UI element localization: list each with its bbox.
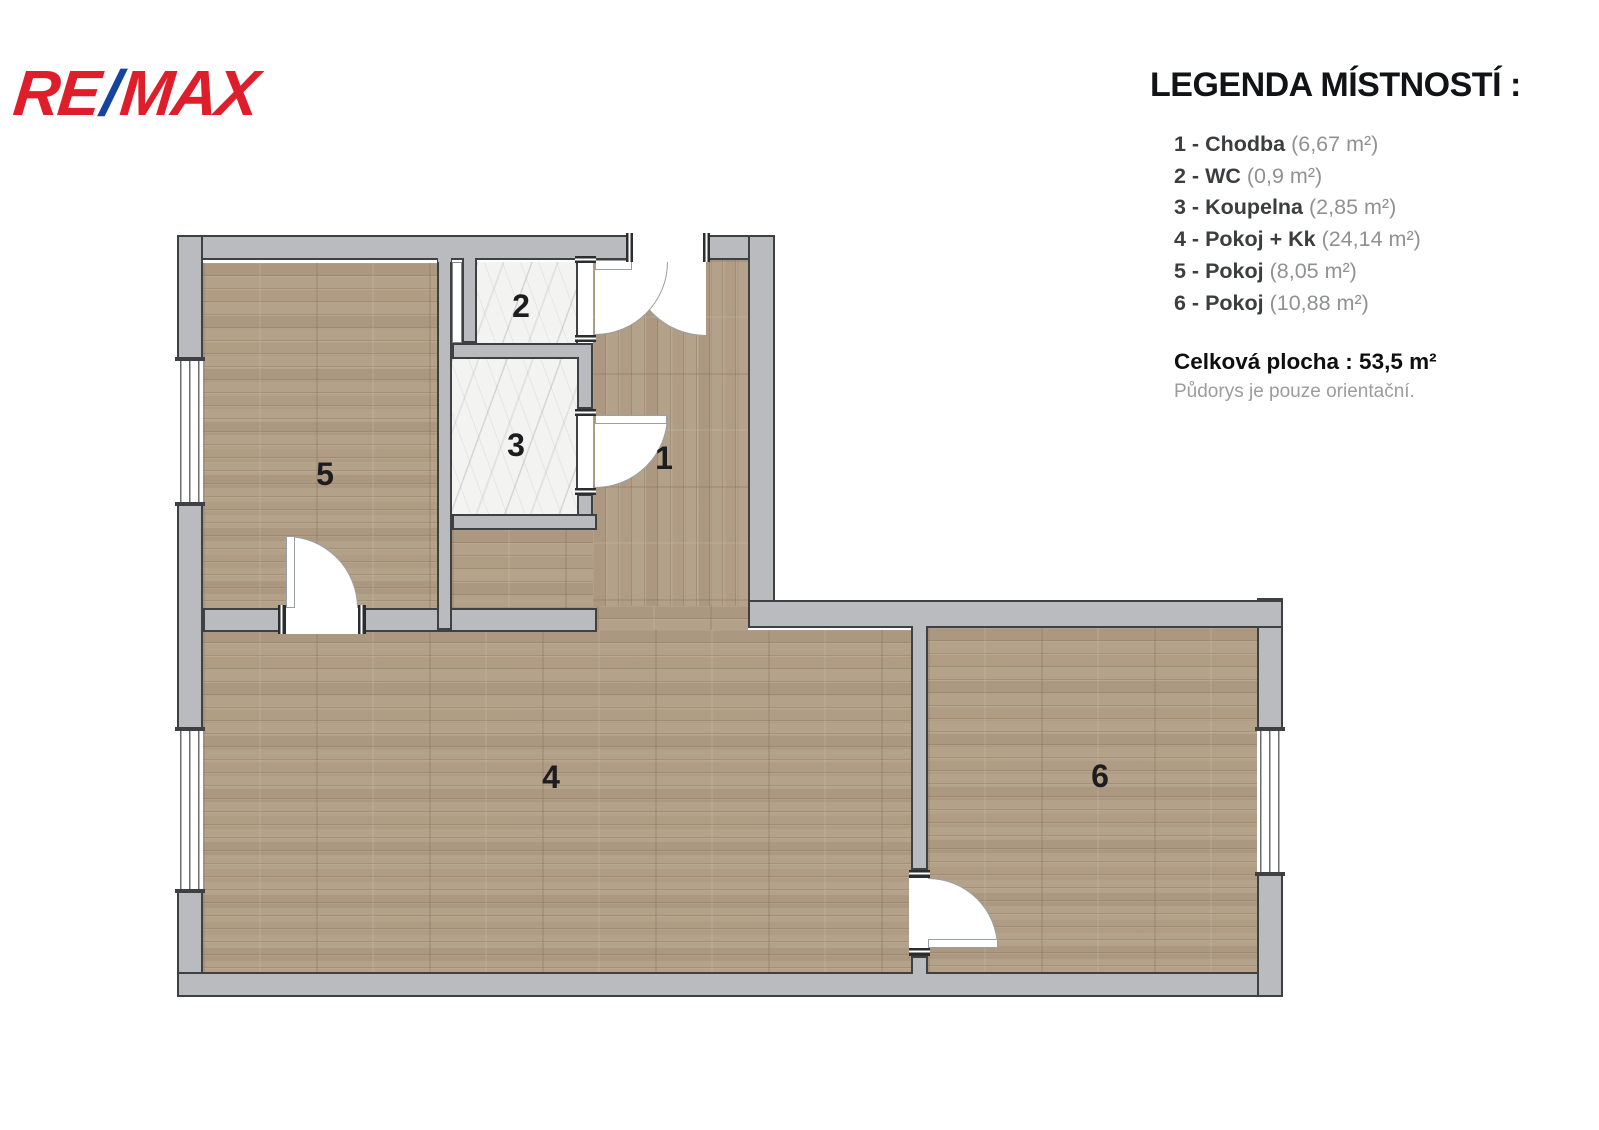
room4-room6-wall-upper [911, 626, 928, 870]
window-frame-cap [175, 889, 205, 893]
room5-door-opening [285, 606, 358, 634]
bathroom-door-jamb [575, 488, 596, 495]
left-wall-middle [177, 501, 203, 732]
legend-item-4: 4 - Pokoj + Kk(24,14 m²) [1174, 224, 1590, 256]
legend-item-label: 6 - Pokoj [1174, 291, 1264, 315]
room3-right-wall-upper [577, 359, 593, 409]
room6-door-jamb [909, 948, 930, 956]
legend-item-label: 2 - WC [1174, 164, 1241, 188]
legend-item-area: (6,67 m²) [1291, 132, 1378, 156]
room-legend: LEGENDA MÍSTNOSTÍ : 1 - Chodba(6,67 m²) … [1150, 66, 1590, 403]
window-frame-cap [175, 727, 205, 731]
window-frame-cap [175, 502, 205, 506]
wc-door-jamb [575, 335, 596, 342]
wall-joint [464, 257, 475, 264]
legend-item-6: 6 - Pokoj(10,88 m²) [1174, 288, 1590, 320]
wall-joint [179, 974, 201, 995]
wall-joint [750, 602, 773, 626]
wall-joint [750, 237, 773, 258]
legend-item-2: 2 - WC(0,9 m²) [1174, 161, 1590, 193]
wall-joint [438, 256, 451, 262]
room-4-label: 4 [529, 755, 573, 799]
entry-door-opening [633, 233, 703, 262]
legend-item-area: (0,9 m²) [1247, 164, 1322, 188]
wc-door-jamb [575, 256, 596, 263]
legend-item-area: (10,88 m²) [1270, 291, 1369, 315]
room6-window [1257, 730, 1283, 873]
corridor-right-wall [748, 235, 775, 626]
legend-disclaimer: Půdorys je pouze orientační. [1150, 381, 1590, 403]
wall-joint [579, 516, 591, 528]
legend-item-area: (24,14 m²) [1322, 227, 1421, 251]
legend-title: LEGENDA MÍSTNOSTÍ : [1150, 66, 1590, 105]
remax-logo: RE/MAX [10, 56, 261, 130]
room-3-label: 3 [494, 423, 538, 467]
wall-joint [439, 610, 450, 628]
room6-door-leaf [928, 939, 998, 948]
wall-joint [1259, 602, 1281, 626]
wall-joint [913, 966, 926, 975]
legend-item-label: 3 - Koupelna [1174, 195, 1303, 219]
legend-items: 1 - Chodba(6,67 m²) 2 - WC(0,9 m²) 3 - K… [1150, 129, 1590, 319]
room2-floor-edge [576, 262, 578, 343]
wall-joint [579, 356, 591, 363]
legend-item-label: 4 - Pokoj + Kk [1174, 227, 1316, 251]
room5-corridor-wall [437, 258, 452, 630]
room-1-label: 1 [642, 436, 686, 480]
room-6-label: 6 [1078, 754, 1122, 798]
legend-item-label: 5 - Pokoj [1174, 259, 1264, 283]
shaft [452, 262, 462, 343]
room6-door-jamb [909, 870, 930, 878]
room2-room3-wall [452, 343, 593, 359]
legend-item-label: 1 - Chodba [1174, 132, 1285, 156]
legend-item-area: (8,05 m²) [1270, 259, 1357, 283]
top-wall-left [177, 235, 633, 260]
room-4-floor [203, 630, 911, 972]
legend-item-area: (2,85 m²) [1309, 195, 1396, 219]
logo-max-text: MAX [117, 57, 261, 129]
corridor-alcove-floor [452, 530, 593, 610]
room5-window [177, 360, 203, 503]
room5-door-jamb [278, 605, 286, 634]
room5-door-leaf [286, 536, 295, 608]
room4-window [177, 730, 203, 890]
room3-bottom-wall [452, 514, 597, 530]
legend-item-1: 1 - Chodba(6,67 m²) [1174, 129, 1590, 161]
wall-joint [1259, 974, 1281, 995]
bathroom-door-jamb [575, 409, 596, 416]
window-frame-cap [1255, 872, 1285, 876]
entry-door-jamb [626, 233, 633, 262]
window-frame-cap [175, 357, 205, 361]
bathroom-door-leaf [595, 415, 667, 424]
logo-re-text: RE [10, 57, 102, 129]
room5-door-jamb [358, 605, 366, 634]
bottom-wall [177, 972, 1283, 997]
legend-total-area: Celková plocha : 53,5 m² [1150, 349, 1590, 375]
room6-door-opening [909, 878, 930, 948]
room-5-label: 5 [303, 452, 347, 496]
entry-door-jamb [703, 233, 710, 262]
legend-item-3: 3 - Koupelna(2,85 m²) [1174, 192, 1590, 224]
window-frame-cap [1255, 727, 1285, 731]
room-2-label: 2 [499, 284, 543, 328]
mid-horizontal-wall [748, 600, 1283, 628]
wall-joint [179, 237, 201, 258]
corridor-room4-wall [358, 608, 597, 632]
legend-item-5: 5 - Pokoj(8,05 m²) [1174, 256, 1590, 288]
room3-floor-edge [576, 415, 578, 488]
room5-room4-wall-left [203, 608, 285, 632]
wall-joint [913, 624, 926, 631]
room2-left-wall [462, 260, 477, 343]
